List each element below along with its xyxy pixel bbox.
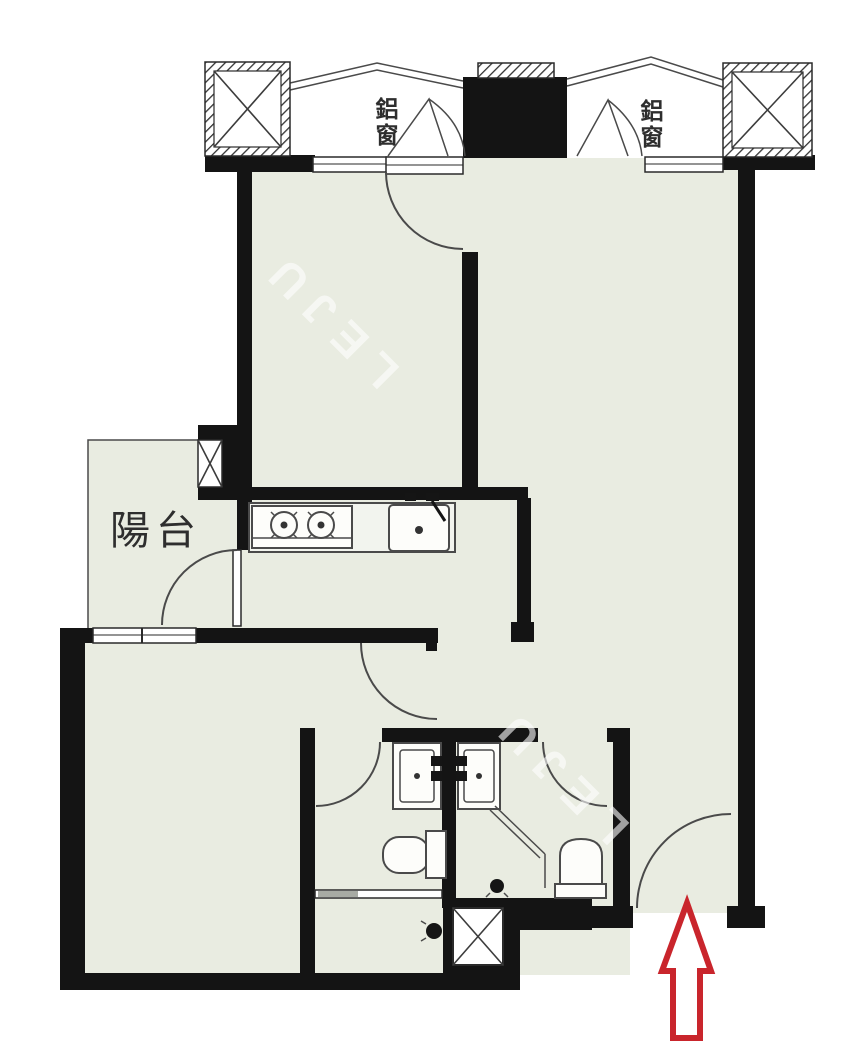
toilet-right-bowl xyxy=(560,839,602,887)
hatched-column-top-left xyxy=(205,62,290,156)
window-label-right: 鋁窗 xyxy=(639,98,665,150)
toilet-left-tank xyxy=(426,831,446,878)
toilet-right-tank xyxy=(555,884,606,898)
pipe-shaft-x-box xyxy=(453,908,503,965)
pipe-valve xyxy=(426,923,442,939)
drain-valve xyxy=(490,879,504,893)
stove xyxy=(252,506,352,548)
balcony-x-column xyxy=(198,440,222,487)
casement-window-right xyxy=(577,100,642,156)
floor-plan: 陽台 鋁窗 鋁窗 LEJU LEJU xyxy=(0,0,862,1062)
hatched-strip-mid-column xyxy=(478,63,554,78)
hatched-column-top-right xyxy=(723,63,812,157)
balcony-label: 陽台 xyxy=(110,498,202,556)
window-label-left: 鋁窗 xyxy=(374,96,400,148)
balcony-door-leaf xyxy=(233,550,241,626)
entry-arrow-icon xyxy=(662,903,711,1038)
faucet xyxy=(405,493,416,501)
toilet-left-bowl xyxy=(383,837,429,873)
